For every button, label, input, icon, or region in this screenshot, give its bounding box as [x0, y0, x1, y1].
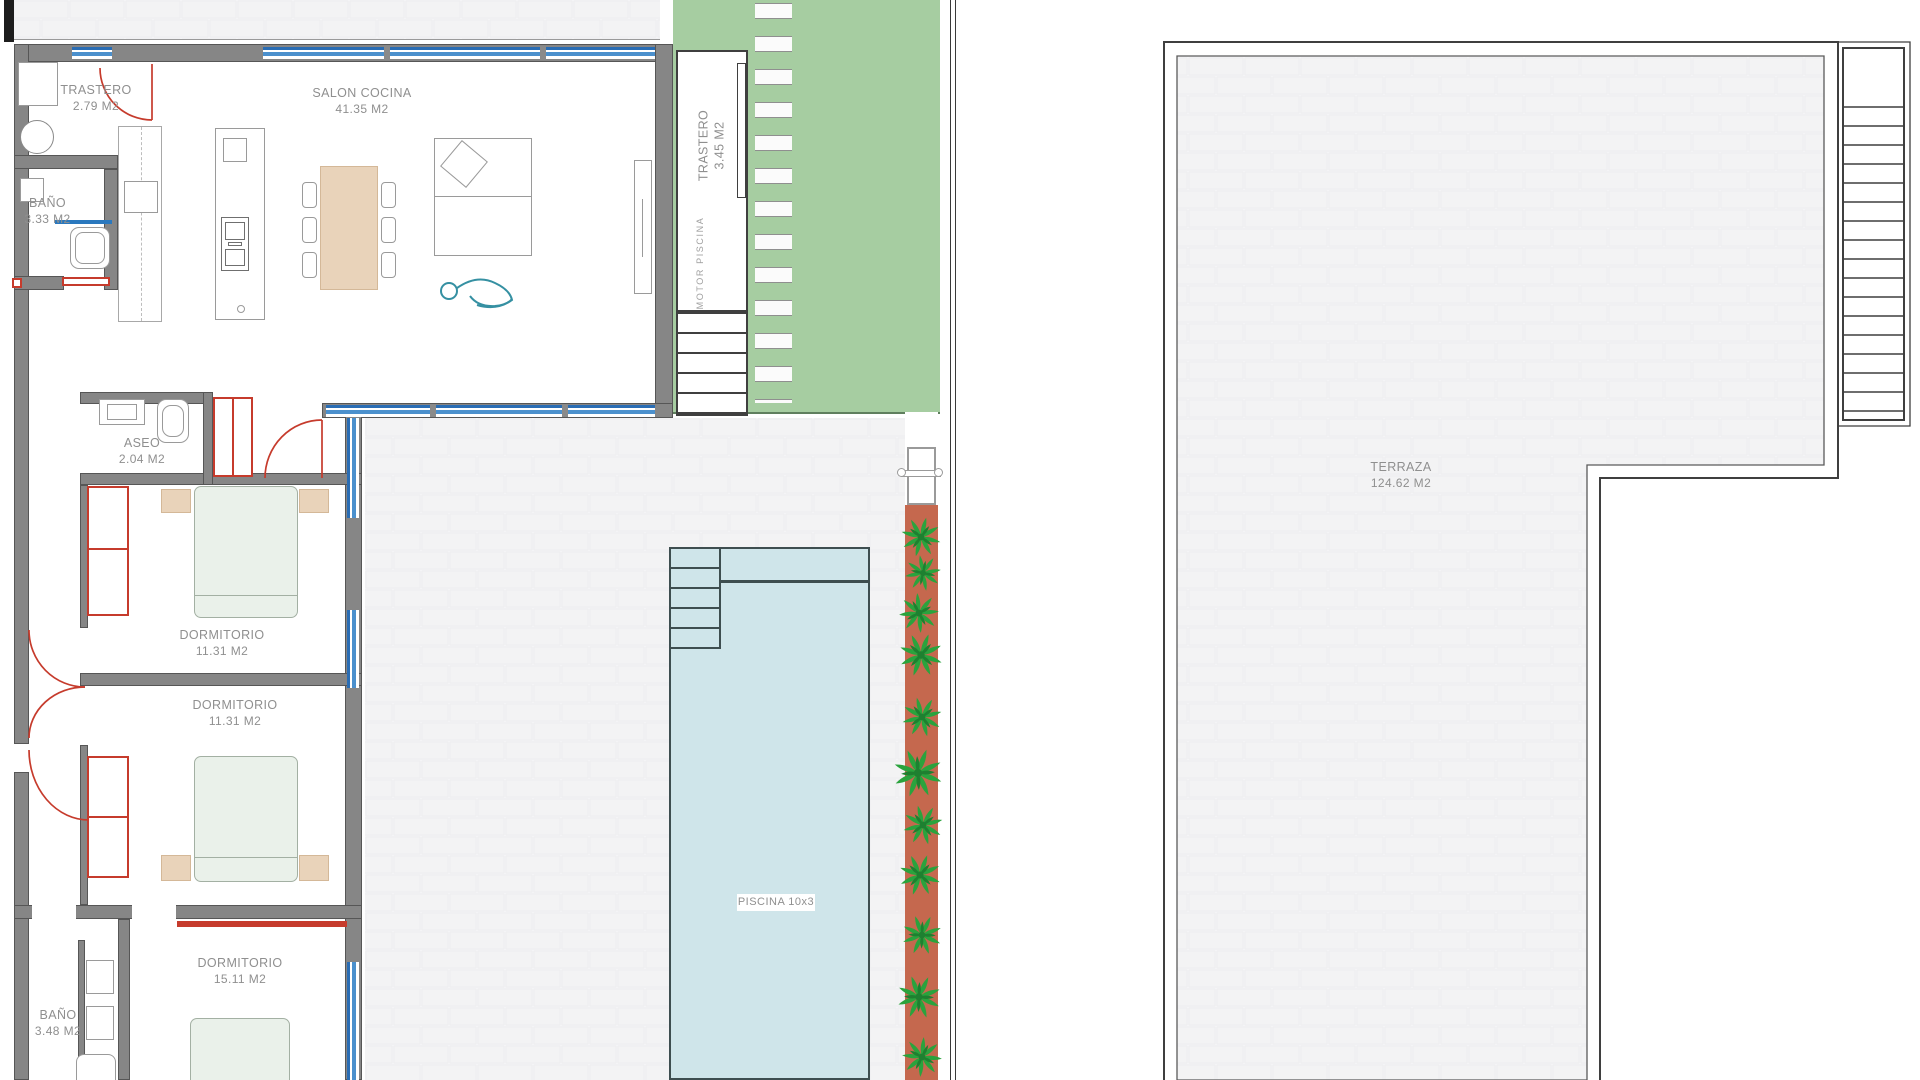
boundary-corner-bar [4, 0, 14, 42]
island-sink [223, 138, 247, 162]
wall-aseo-right [203, 392, 213, 485]
room-label-terraza: TERRAZA 124.62 M2 [1341, 460, 1461, 491]
room-area: 11.31 M2 [147, 644, 297, 660]
window-dorm2 [347, 610, 359, 688]
door-jamb-red [12, 278, 22, 288]
swimming-pool [669, 547, 870, 1080]
wardrobe-dorm1 [87, 486, 129, 616]
aseo-sink [99, 399, 145, 425]
toilet-seat [75, 232, 105, 264]
room-area: 11.31 M2 [160, 714, 310, 730]
bed-dorm3 [190, 1018, 290, 1080]
room-name: BAÑO [0, 196, 95, 212]
room-label-aseo: ASEO 2.04 M2 [82, 436, 202, 467]
bed-fold [195, 857, 297, 858]
wardrobe-dorm2 [87, 756, 129, 878]
chair [302, 217, 317, 243]
window-trastero1 [72, 47, 112, 59]
dining-table [320, 166, 378, 290]
paver-band-top [13, 0, 660, 40]
kitchen-sink [124, 181, 158, 213]
oven-bottom [225, 249, 245, 266]
planter-strip [905, 505, 938, 1080]
terrace-stairs [1843, 48, 1904, 420]
window-mullion [562, 404, 568, 417]
terrace-parapet [1164, 42, 1838, 1080]
window-dorm1 [347, 418, 359, 518]
pool-ledge [719, 580, 868, 583]
window-salon-south [326, 405, 655, 417]
wardrobe-divider [89, 816, 127, 818]
room-name: TERRAZA [1341, 460, 1461, 476]
oven-handle [228, 242, 242, 246]
bedside-table [161, 489, 191, 513]
chair [381, 217, 396, 243]
bedside-table [299, 855, 329, 881]
kitchen-counter [118, 126, 162, 322]
room-name: DORMITORIO [160, 698, 310, 714]
room-label-dorm1: DORMITORIO 11.31 M2 [147, 628, 297, 659]
room-name: SALON COCINA [302, 86, 422, 102]
wardrobe-divider [89, 548, 127, 550]
chair [381, 182, 396, 208]
room-area: 41.35 M2 [302, 102, 422, 118]
room-label-motor-piscina: MOTOR PISCINA [695, 208, 705, 318]
bed-dorm1 [194, 486, 298, 618]
window-mullion [540, 46, 546, 60]
room-label-dorm3: DORMITORIO 15.11 M2 [165, 956, 315, 987]
shower-tray [76, 1054, 116, 1080]
wardrobe-divider [232, 399, 234, 475]
room-label-bano2: BAÑO 3.48 M2 [0, 1008, 118, 1039]
room-label-dorm2: DORMITORIO 11.31 M2 [160, 698, 310, 729]
terrace-pavers [1177, 56, 1824, 1080]
property-boundary-line [950, 0, 956, 1080]
wall-bano2-right [118, 919, 130, 1080]
room-name: TRASTERO [36, 83, 156, 99]
vanity-sink [86, 960, 114, 994]
island-dot [237, 305, 245, 313]
oven-top [225, 222, 245, 240]
room-label-bano1: BAÑO 3.33 M2 [0, 196, 95, 227]
window-dorm3 [347, 962, 359, 1080]
bed-fold [195, 595, 297, 596]
room-area: 2.79 M2 [36, 99, 156, 115]
door-opening-dorm3 [132, 905, 176, 919]
sofa-seam [435, 196, 531, 197]
room-area: 2.04 M2 [82, 452, 202, 468]
wall-salon-right [655, 44, 673, 418]
exterior-stairs [676, 312, 748, 416]
pool-steps [671, 549, 721, 649]
chair [302, 252, 317, 278]
plants [905, 505, 938, 1080]
aseo-sink-bowl [107, 404, 137, 420]
terrace-outline [1160, 38, 1915, 1080]
stair-treads [1843, 107, 1904, 411]
room-label-trastero2: TRASTERO 3.45 M2 [697, 86, 728, 206]
gate-hinge-icon [897, 468, 906, 477]
stove [221, 217, 249, 271]
wall-dorm1-dorm2-divider [80, 673, 362, 686]
storage-door-leaf [737, 63, 746, 198]
room-name: DORMITORIO [147, 628, 297, 644]
room-name: BAÑO [0, 1008, 118, 1024]
window-salon-north [263, 47, 655, 59]
toilet [70, 227, 110, 269]
room-area: 15.11 M2 [165, 972, 315, 988]
door-opening-bano2 [32, 905, 76, 919]
room-label-salon: SALON COCINA 41.35 M2 [302, 86, 422, 117]
chair [302, 182, 317, 208]
tv-unit [634, 160, 652, 294]
wardrobe-dorm3 [177, 921, 347, 927]
stairs-frame [1838, 42, 1910, 426]
room-name: DORMITORIO [165, 956, 315, 972]
bedside-table [161, 855, 191, 881]
floor-plan-canvas: PISCINA 10x3 [0, 0, 1920, 1080]
chair [381, 252, 396, 278]
room-name: ASEO [82, 436, 202, 452]
gate-latch-icon [934, 468, 943, 477]
room-name: MOTOR PISCINA [695, 208, 705, 318]
room-name: TRASTERO [697, 86, 713, 206]
kitchen-island [215, 128, 265, 320]
window-mullion [384, 46, 390, 60]
aseo-toilet-seat [162, 405, 184, 437]
door-leaf-bano1 [62, 277, 110, 286]
wall-trastero1-bottom [14, 155, 118, 169]
bedside-table [299, 489, 329, 513]
pool-label: PISCINA 10x3 [737, 894, 815, 911]
tv-line [642, 199, 643, 257]
bed-dorm2 [194, 756, 298, 882]
room-area: 3.33 M2 [0, 212, 95, 228]
window-mullion [430, 404, 436, 417]
room-area: 124.62 M2 [1341, 476, 1461, 492]
room-area: 3.48 M2 [0, 1024, 118, 1040]
room-area: 3.45 M2 [712, 86, 728, 206]
counter-edge [141, 127, 142, 321]
water-heater-icon [20, 120, 54, 154]
pergola-louvers [755, 3, 792, 403]
room-label-trastero1: TRASTERO 2.79 M2 [36, 83, 156, 114]
stair-treads [678, 314, 746, 414]
wardrobe-hall [213, 397, 253, 477]
